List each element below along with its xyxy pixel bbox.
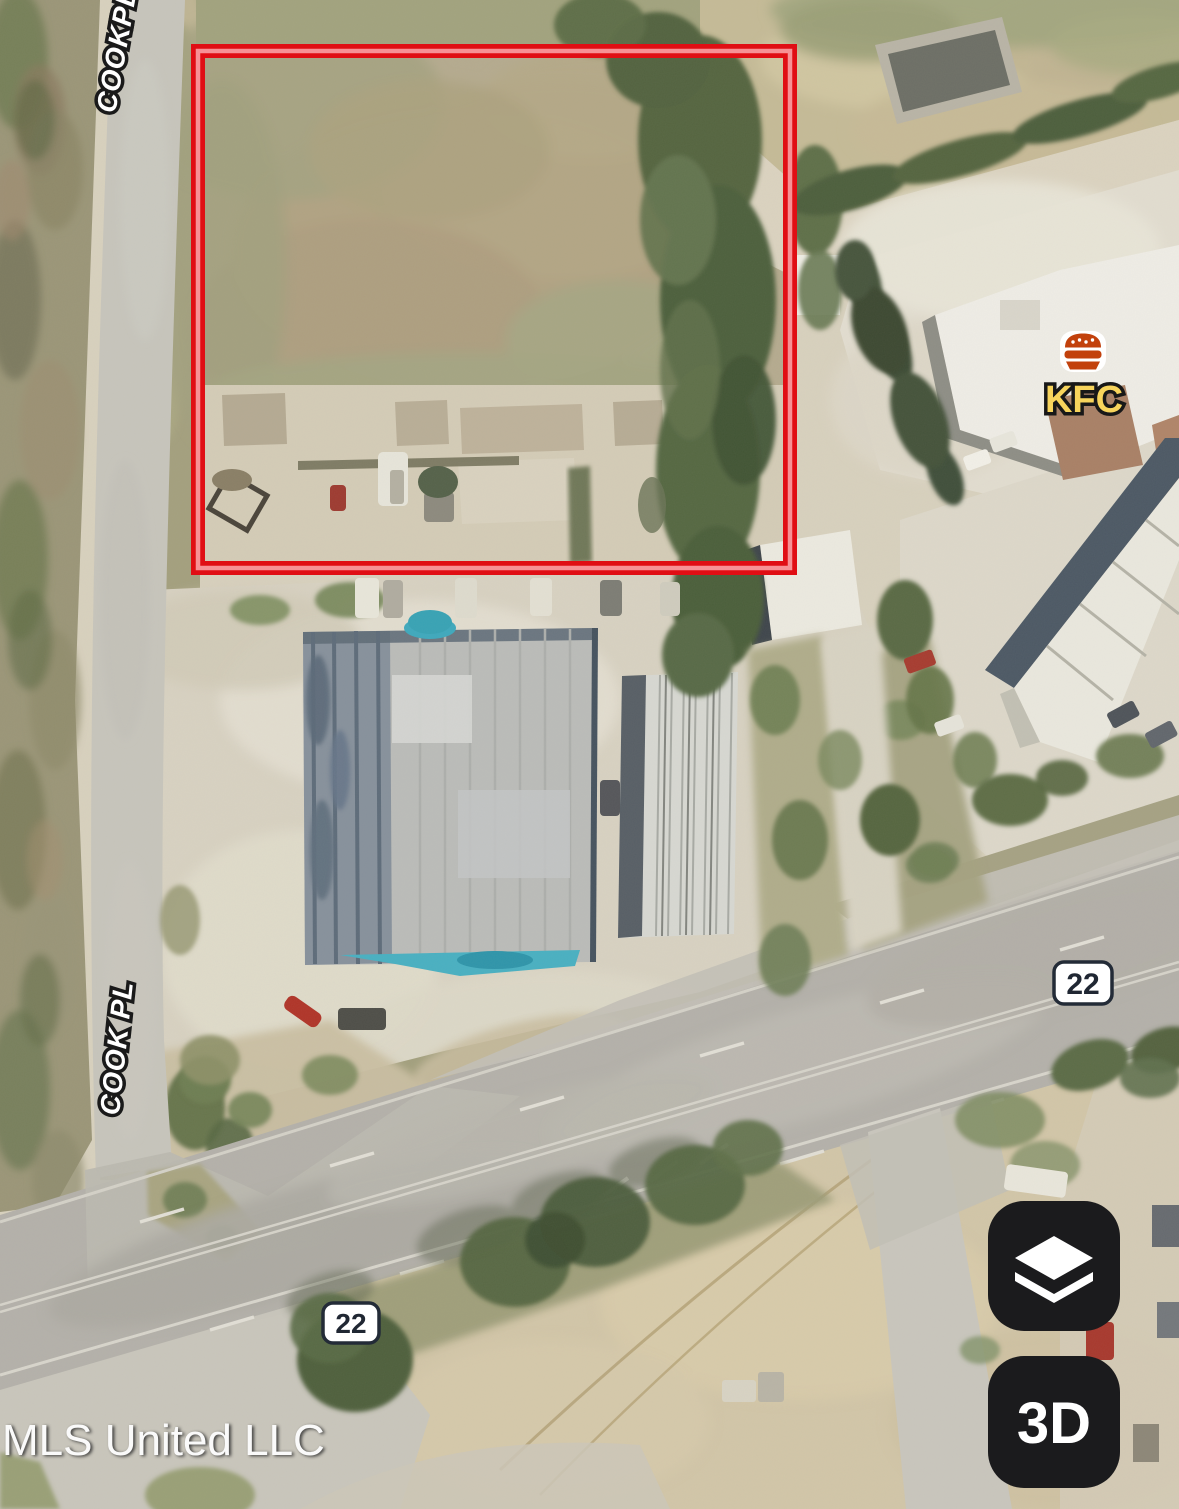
svg-text:22: 22: [1066, 968, 1099, 1001]
svg-text:22: 22: [335, 1308, 366, 1339]
svg-text:MLS United LLC: MLS United LLC: [2, 1416, 325, 1465]
svg-text:3D: 3D: [1017, 1391, 1091, 1456]
svg-text:KFC: KFC: [1045, 379, 1123, 421]
